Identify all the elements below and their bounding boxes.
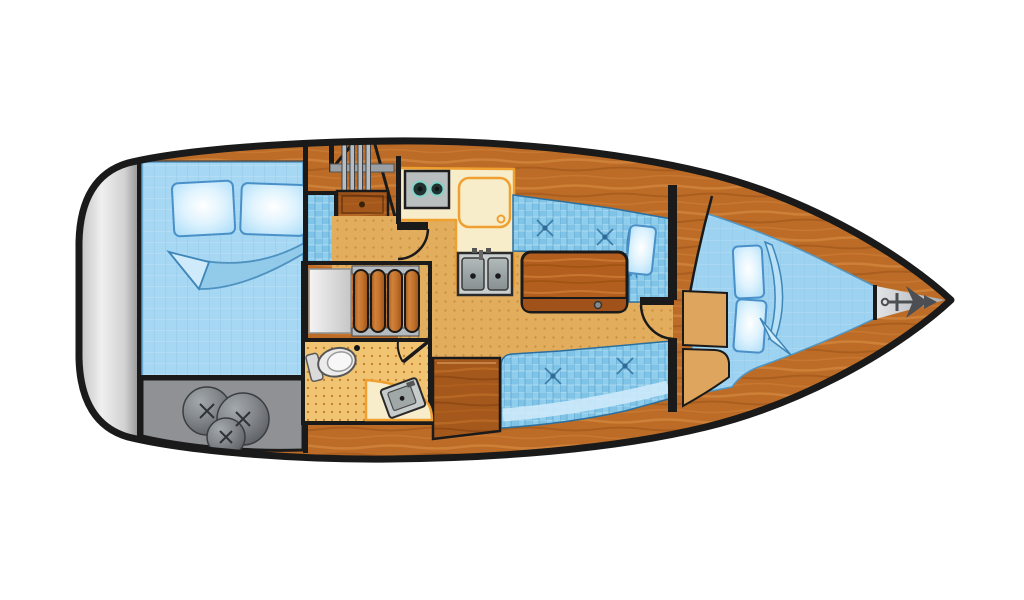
table-leaf <box>522 298 627 312</box>
nav-seat <box>352 266 419 336</box>
aft-berth-pillow <box>172 180 236 236</box>
vberth-floor-wedge <box>683 291 727 347</box>
boat-floor-plan-canvas <box>0 0 1024 600</box>
settee-pillow <box>626 225 657 275</box>
seat-slat <box>388 270 402 332</box>
salon-table <box>522 252 627 312</box>
bulkhead <box>668 185 677 300</box>
berth-head-trim-line <box>142 160 303 162</box>
nav-station <box>303 263 430 340</box>
drain <box>495 273 501 279</box>
galley-wall <box>396 156 401 224</box>
v-berth-pillow <box>733 299 767 353</box>
bulkhead <box>668 338 677 412</box>
head-compartment <box>303 340 432 423</box>
aft-door-leaf <box>397 222 428 230</box>
faucet-knob <box>472 248 477 253</box>
seat-slat <box>405 270 419 332</box>
drawer-knob <box>359 202 365 208</box>
hull-interior <box>70 140 951 460</box>
aft-berth-side-cushion <box>307 195 336 265</box>
drain <box>470 273 476 279</box>
double-sink <box>458 248 512 295</box>
burner <box>431 183 444 196</box>
engine-top-wall <box>140 375 307 379</box>
floor-plan-svg <box>0 0 1024 600</box>
seat-slat <box>354 270 368 332</box>
v-berth-pillow <box>733 245 765 298</box>
faucet <box>479 250 483 260</box>
mast-post <box>354 345 360 351</box>
faucet-knob <box>486 248 491 253</box>
seat-slat <box>371 270 385 332</box>
chart-table <box>309 269 351 333</box>
burner <box>413 182 428 197</box>
locker-wall <box>873 285 877 320</box>
aft-berth-pillow <box>240 183 307 236</box>
table-latch <box>595 302 602 309</box>
galley-cabinet <box>433 358 500 439</box>
wall-segment <box>305 191 338 195</box>
icebox-latch <box>498 216 505 223</box>
